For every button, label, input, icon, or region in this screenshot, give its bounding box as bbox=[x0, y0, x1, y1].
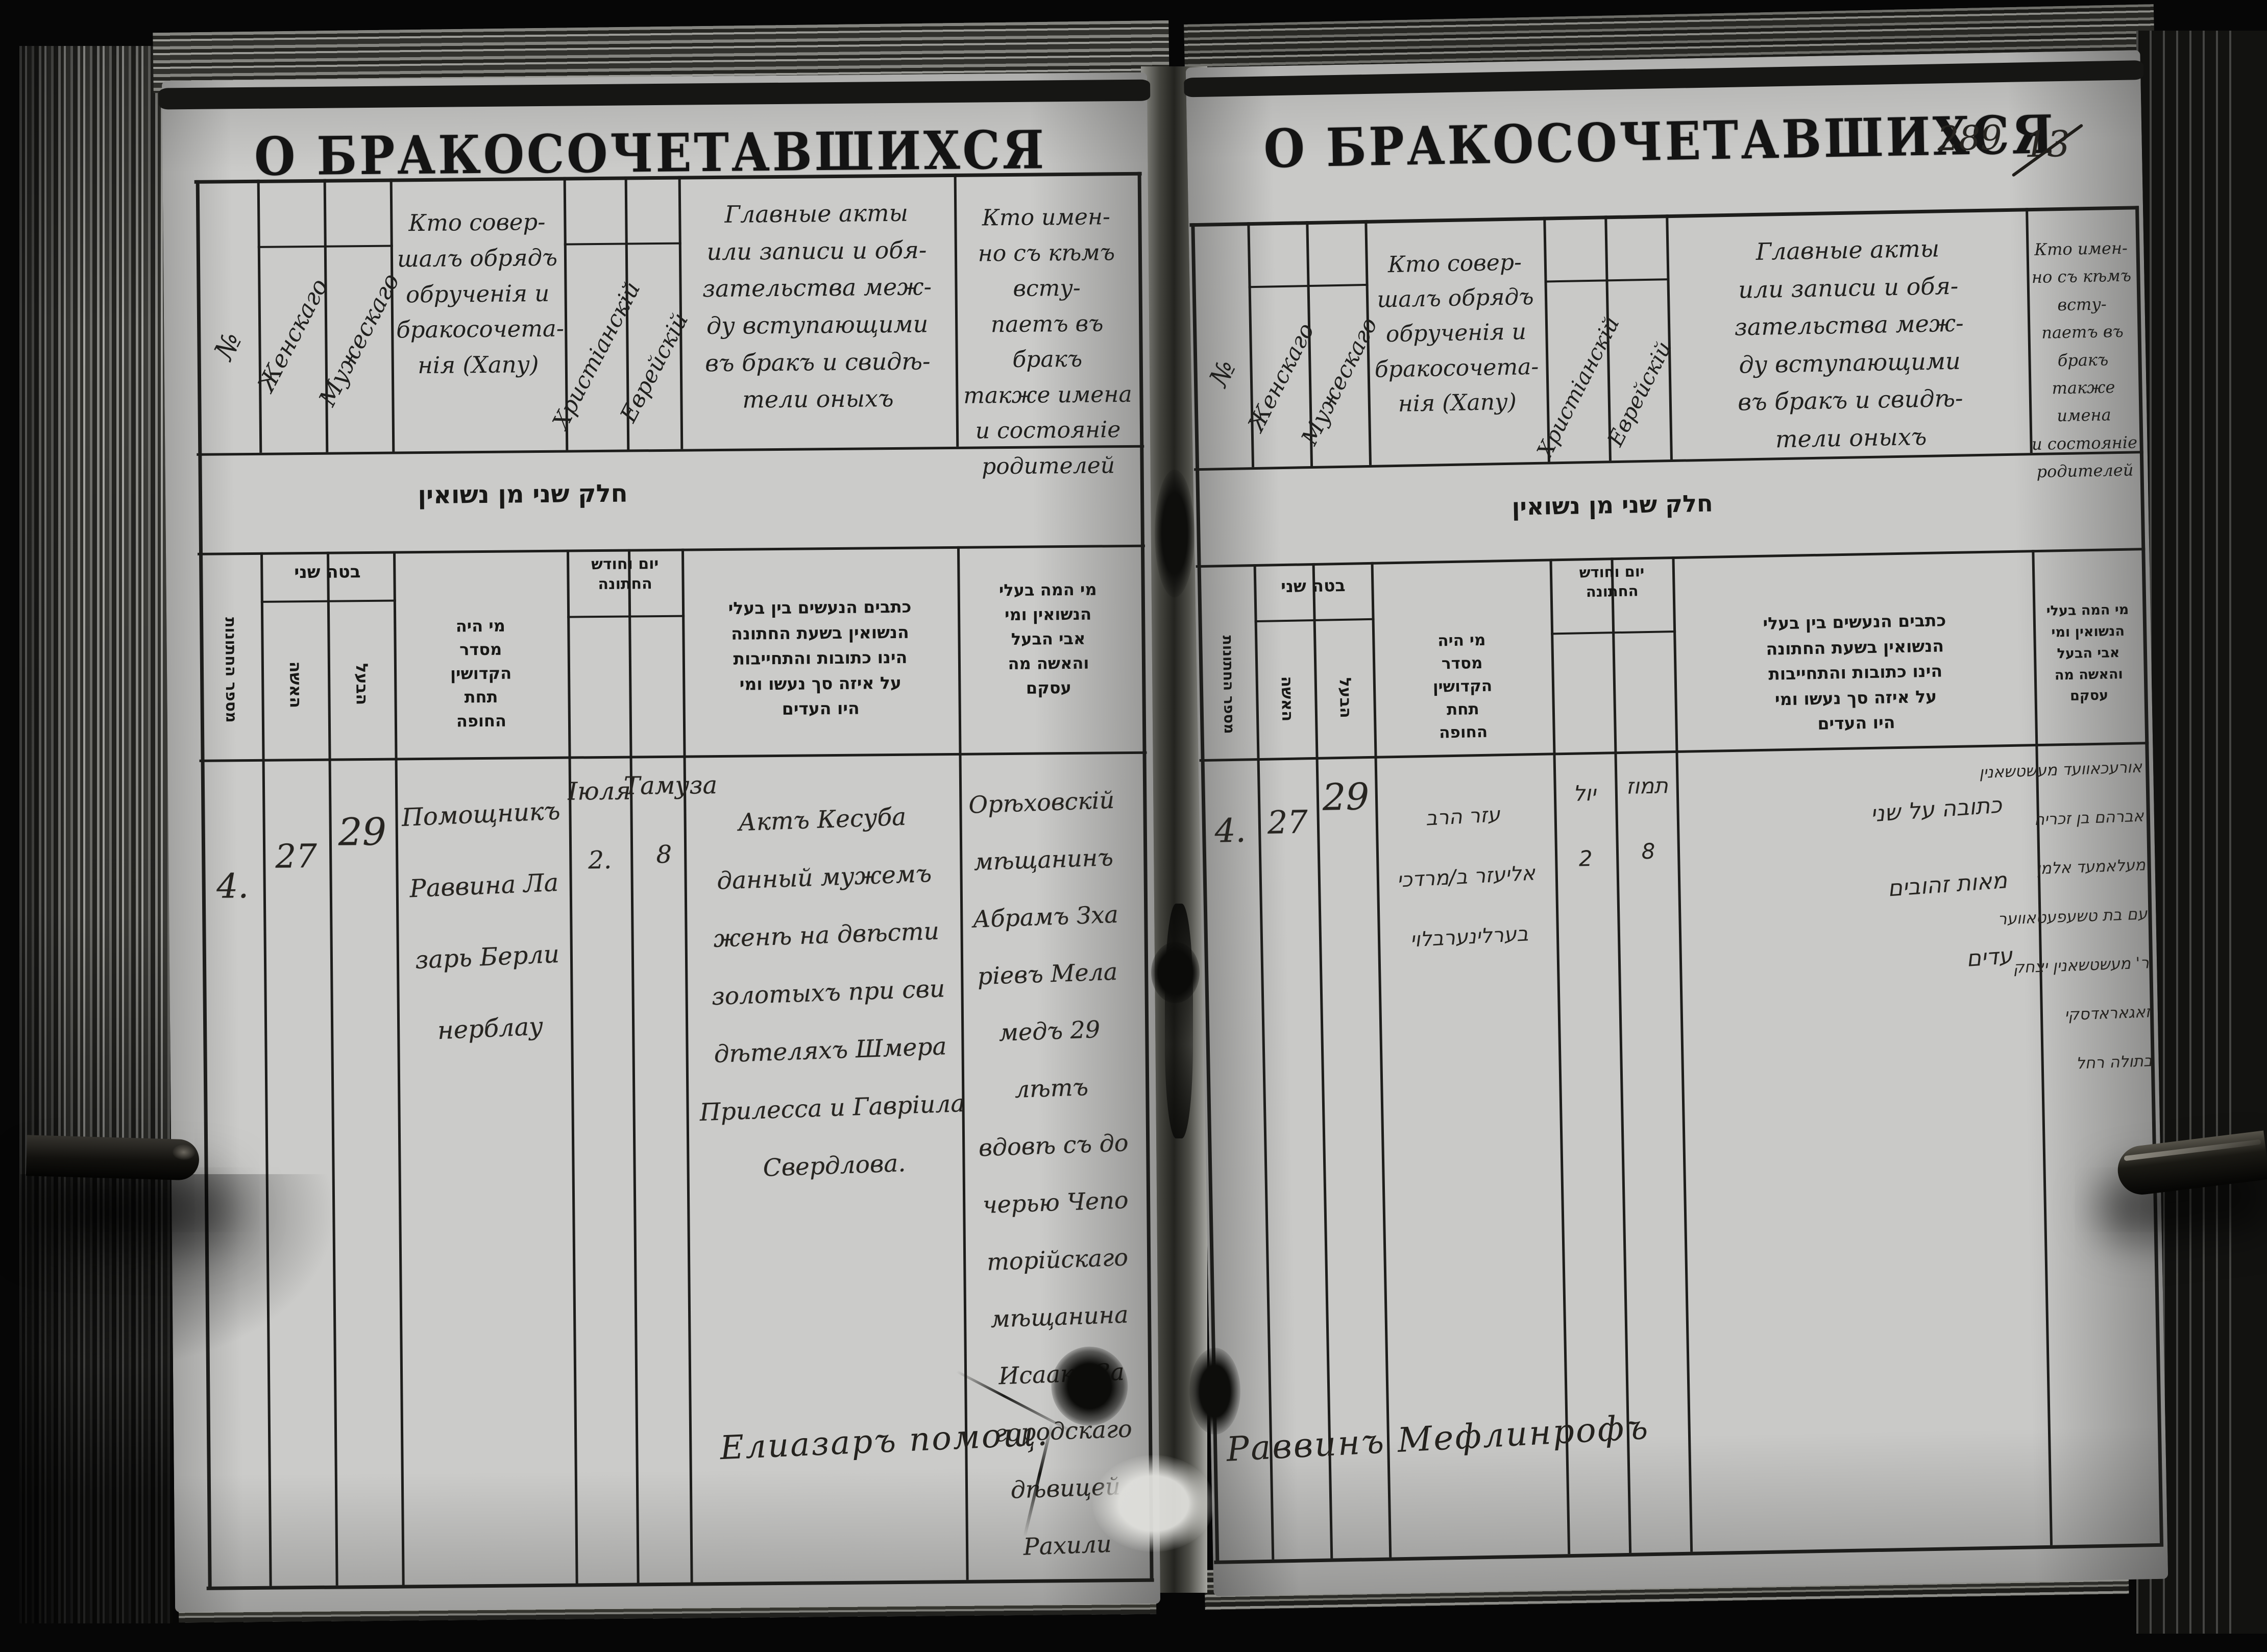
hebrew-header-husband: הבעל bbox=[1336, 677, 1355, 718]
table-line bbox=[1549, 558, 1570, 1554]
hebrew-header-who-marries: מי המה בעלי הנשואין ומי אבי הבעל והאשה מ… bbox=[2034, 599, 2142, 708]
record-groom-age: 29 bbox=[329, 810, 396, 855]
left-page-top-edge bbox=[159, 80, 1150, 110]
hebrew-header-who-marries: מי המה בעלי הנשואין ומי אבי הבעל והאשה מ… bbox=[964, 577, 1133, 701]
rabbi-signature: Раввинъ Мефлинрофъ bbox=[1226, 1407, 1650, 1469]
right-page-top-edge bbox=[1184, 60, 2143, 97]
column-header-who-marries: Кто имен- но съ кѣмъ всту- паетъ въ брак… bbox=[2027, 234, 2139, 485]
hebrew-section-band: חלק שני מן נשואין bbox=[1357, 487, 1868, 523]
hebrew-header-officiant: מי היה מסדר הקדושין תחת החופה bbox=[1380, 628, 1545, 746]
table-line bbox=[567, 615, 685, 618]
record-bride-age: 27 bbox=[1258, 803, 1317, 841]
right-page: О БРАКОСОЧЕТАВШИХСЯ 289 13 № Жен bbox=[1186, 50, 2168, 1596]
record-acts: כתובה על שני מאות זהובים עדים bbox=[1684, 766, 2036, 1016]
ink-stain bbox=[1165, 904, 1193, 1138]
table-line bbox=[681, 549, 693, 1583]
record-officiant: Помощникъ Раввина Ла зарь Берли нерблау bbox=[393, 775, 578, 1068]
hebrew-header-wife: האשה bbox=[1278, 676, 1297, 721]
table-line bbox=[324, 179, 329, 452]
column-header-number: № bbox=[1204, 355, 1242, 392]
column-header-acts: Главные акты или записи и обя- зательств… bbox=[689, 194, 946, 419]
column-header-officiant: Кто совер- шалъ обрядъ обрученія и брако… bbox=[395, 204, 560, 384]
table-line bbox=[1312, 563, 1333, 1559]
page-stack-left-shading bbox=[19, 46, 173, 1623]
record-date-jewish: תמוז 8 bbox=[1614, 753, 1683, 885]
table-line bbox=[257, 180, 262, 453]
book-rod-left bbox=[26, 1135, 200, 1180]
table-line bbox=[327, 552, 338, 1586]
page-number: 289 bbox=[1937, 118, 2002, 158]
record-who-marries: Орѣховскій мѣщанинъ Абрамъ Зха ріевъ Мел… bbox=[951, 771, 1158, 1577]
right-page-title: О БРАКОСОЧЕТАВШИХСЯ bbox=[1263, 104, 2010, 180]
record-acts: Актъ Кесуба данный мужемъ женѣ на двѣсти… bbox=[684, 786, 973, 1199]
record-number: 4. bbox=[202, 866, 263, 906]
table-line bbox=[628, 549, 640, 1583]
record-groom-age: 29 bbox=[1316, 775, 1376, 819]
hebrew-header-acts: כתבים הנעשים בין בעלי הנשואין בשעת החתונ… bbox=[692, 594, 948, 722]
hebrew-header-count: מספר החתונות bbox=[222, 617, 240, 723]
hebrew-header-husband: הבעל bbox=[352, 663, 372, 706]
page-number-struck: 13 bbox=[2024, 123, 2070, 166]
ink-stain bbox=[1189, 1348, 1240, 1435]
left-page: О БРАКОСОЧЕТАВШИХСЯ № Женскаго Мужескаго bbox=[162, 72, 1160, 1613]
hebrew-header-wife: האשה bbox=[286, 661, 306, 708]
hebrew-header-officiant: מי היה מסדר הקדושין תחת החופה bbox=[399, 614, 563, 734]
table-line bbox=[564, 242, 681, 246]
table-line bbox=[1666, 214, 1673, 459]
record-who-marries: אורעכאוועד מעשטשאנין אברהם בן זכריה מעלא… bbox=[2037, 743, 2154, 1089]
page-hole bbox=[1051, 1346, 1128, 1426]
column-header-female: Женскаго bbox=[252, 274, 333, 396]
record-bride-age: 27 bbox=[263, 838, 330, 876]
record-date-christian: יול 2 bbox=[1551, 760, 1620, 892]
hebrew-header-date: יום וחודש החתונה bbox=[1550, 562, 1674, 602]
table-line bbox=[1611, 557, 1631, 1553]
table-line bbox=[1247, 222, 1254, 467]
table-line bbox=[1254, 564, 1275, 1560]
hebrew-section-band: חלק שני מן נשואין bbox=[319, 478, 727, 511]
table-line bbox=[390, 179, 395, 452]
record-officiant: עזר הרב אליעזר ב/מרדכי בערלינערבלוי bbox=[1375, 782, 1557, 972]
hebrew-header-date: יום וחודש החתונה bbox=[567, 554, 684, 595]
record-number: 4. bbox=[1202, 812, 1258, 851]
rod-shadow bbox=[20, 1174, 337, 1368]
table-line bbox=[207, 1578, 1154, 1590]
table-line bbox=[260, 552, 272, 1586]
table-line bbox=[1214, 1543, 2163, 1564]
hebrew-header-age: בטה שני bbox=[1254, 575, 1373, 597]
column-header-who-marries: Кто имен- но съ кѣмъ всту- паетъ въ брак… bbox=[959, 199, 1135, 484]
ink-stain bbox=[1151, 942, 1200, 1003]
table-line bbox=[1189, 206, 2139, 227]
hebrew-header-acts: כתבים הנעשים בין בעלי הנשואין בשעת החתונ… bbox=[1688, 606, 2022, 739]
column-header-number: № bbox=[208, 327, 248, 365]
register-book-scan: О БРАКОСОЧЕТАВШИХСЯ № Женскаго Мужескаго bbox=[0, 0, 2267, 1652]
column-header-acts: Главные акты или записи и обя- зательств… bbox=[1681, 229, 2017, 460]
paper-crumple-highlight bbox=[1092, 1455, 1215, 1552]
column-header-officiant: Кто совер- шалъ обрядъ обрученія и брако… bbox=[1370, 245, 1542, 422]
column-header-jewish-date: Еврейскій bbox=[1602, 337, 1676, 450]
ink-stain bbox=[1155, 470, 1195, 597]
hebrew-header-age: בטה שני bbox=[260, 562, 394, 583]
table-line bbox=[954, 174, 959, 447]
hebrew-header-count: מספר החתונות bbox=[1220, 635, 1238, 734]
table-line bbox=[567, 550, 578, 1584]
